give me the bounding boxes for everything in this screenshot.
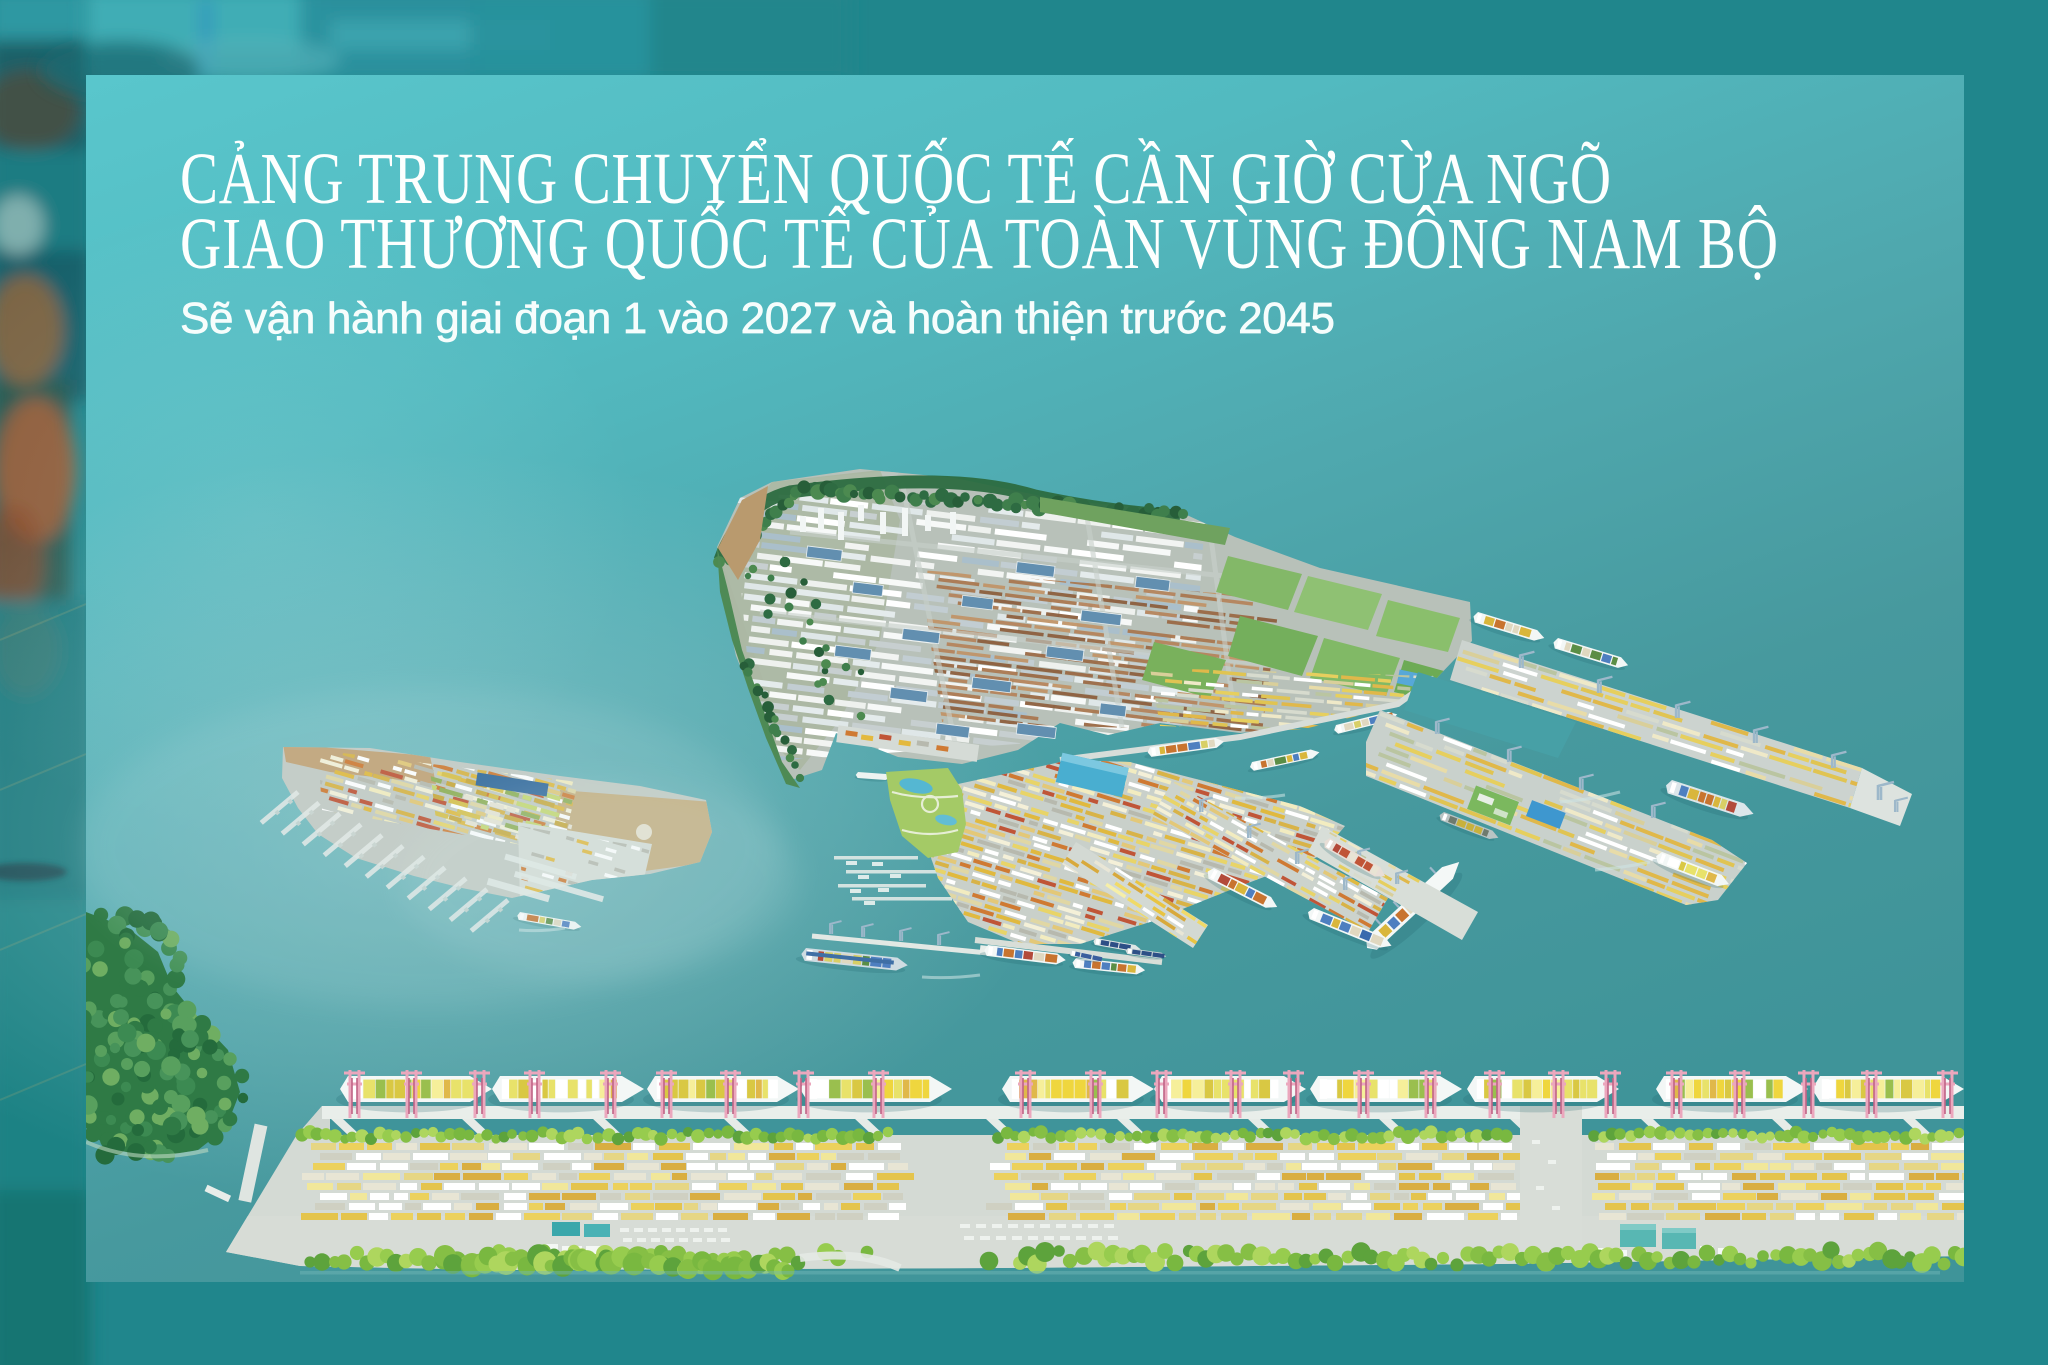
svg-text:GIAO THƯƠNG QUỐC TẾ CỦA TOÀN V: GIAO THƯƠNG QUỐC TẾ CỦA TOÀN VÙNG ĐÔNG N… (180, 202, 1778, 284)
svg-text:Sẽ vận hành giai đoạn 1 vào 20: Sẽ vận hành giai đoạn 1 vào 2027 và hoàn… (180, 294, 1335, 343)
